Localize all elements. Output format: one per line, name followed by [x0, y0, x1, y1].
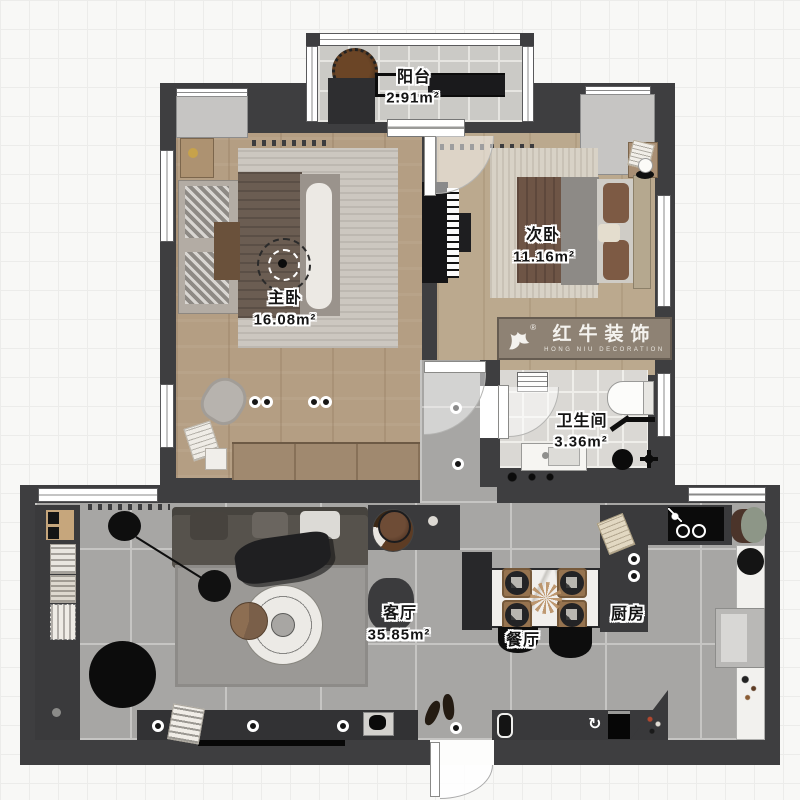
shower-drain	[612, 449, 633, 470]
balcony-sliding-door-opening	[387, 119, 465, 137]
master-area-label: 16.08m²	[254, 312, 317, 329]
master-wardrobe	[232, 442, 420, 480]
living-label: 客厅	[383, 599, 417, 623]
coffee-table-tray	[271, 613, 295, 637]
sofa-pillow-mid	[252, 512, 288, 538]
piano-keys	[447, 188, 459, 278]
bathroom-door-leaf	[498, 385, 509, 439]
master-window-upper	[160, 150, 174, 242]
washing-machine	[328, 78, 375, 124]
balcony-window-left	[306, 46, 318, 122]
master-side-table	[205, 448, 227, 470]
stove-utensil	[668, 508, 682, 522]
console-knob-3	[337, 720, 349, 732]
dining-chair-1	[502, 568, 532, 598]
second-bed-pillow-brown-top	[603, 183, 629, 223]
sofa-pillow-dark	[190, 512, 228, 540]
hongniu-logo-banner: ® 红牛装饰 HONG NIU DECORATION	[497, 317, 672, 360]
shelf-decor	[50, 604, 76, 640]
bathroom-window-right	[657, 373, 671, 437]
curtain-ticks-master	[252, 140, 332, 146]
shower-fixture	[640, 450, 658, 468]
bay-window-top-left	[176, 96, 248, 138]
bathroom-faucet	[542, 452, 549, 459]
balcony-corner-post-right	[520, 33, 534, 46]
bathroom-door-opening	[480, 386, 500, 438]
kitchen-knob-2	[628, 570, 640, 582]
master-door-leaf	[424, 361, 486, 373]
shelf-books-1	[50, 544, 76, 574]
dining-chair-back-2	[549, 627, 592, 658]
dining-chair-pad	[511, 577, 522, 588]
wardrobe-knob-2	[261, 396, 273, 408]
wardrobe-knob-4	[320, 396, 332, 408]
living-window-top-left	[38, 488, 158, 502]
hongniu-bull-icon	[504, 326, 530, 352]
counter-bottle	[497, 713, 513, 738]
wardrobe-knob-3	[308, 396, 320, 408]
refrigerator-door	[721, 614, 747, 662]
kitchen-plant-leaves	[741, 507, 767, 543]
master-label: 主卧	[268, 284, 302, 308]
balcony-window-top	[306, 33, 534, 46]
shelf-vase	[52, 708, 61, 717]
console-speaker-driver	[369, 715, 386, 730]
hongniu-subtitle-text: HONG NIU DECORATION	[544, 347, 665, 353]
kitchen-sink-basin	[737, 548, 764, 575]
kitchen-label: 厨房	[611, 600, 645, 624]
second-bed-duvet-gray	[561, 177, 599, 285]
coffee-table-wood	[230, 602, 268, 640]
shelf-frame-3	[48, 527, 59, 539]
console-knob-1	[152, 720, 164, 732]
entry-doorstop	[450, 722, 462, 734]
hongniu-brand-text: 红牛装饰	[552, 325, 656, 344]
shelf-frame-2	[48, 512, 59, 524]
piano-body	[422, 182, 448, 283]
second-bed-pillow-white	[598, 224, 620, 242]
tv-screen	[198, 740, 345, 746]
balcony-corner-post-left	[306, 33, 320, 46]
second-bed-headboard	[633, 175, 651, 289]
balcony-area-label: 2.91m²	[386, 90, 440, 107]
console-knob-2	[247, 720, 259, 732]
dining-centerpiece-flowers	[530, 582, 562, 614]
wardrobe-knob-1	[249, 396, 261, 408]
dining-side-vase	[378, 510, 411, 543]
second-bedroom-window-right	[657, 195, 671, 307]
master-bed-sheet-white	[306, 183, 332, 309]
second-nightstand-lamp	[638, 158, 653, 173]
living-area-label: 35.85m²	[368, 627, 431, 644]
bathroom-label: 卫生间	[556, 407, 607, 431]
dining-label: 餐厅	[506, 626, 540, 650]
second-label: 次卧	[526, 221, 560, 245]
dishwasher-icon: ↻	[588, 714, 601, 734]
stove-burner-2	[692, 524, 706, 538]
dining-chair-pad	[566, 609, 577, 620]
shelf-books-2	[50, 575, 76, 603]
kitchen-window-top	[688, 487, 766, 502]
master-bed-runner	[214, 222, 240, 280]
kitchen-floor-specks	[738, 672, 762, 702]
master-window-lower	[160, 384, 174, 448]
dining-bench	[462, 552, 492, 630]
balcony-label: 阳台	[397, 63, 431, 87]
floor-plan-canvas: ® 红牛装饰 HONG NIU DECORATION	[0, 0, 800, 800]
counter-appliance	[608, 711, 630, 739]
arc-lamp-shade	[198, 570, 231, 602]
balcony-window-right	[522, 46, 534, 122]
beanbag-chair	[89, 641, 156, 708]
kitchen-knob-1	[628, 553, 640, 565]
dining-chair-4	[557, 600, 587, 630]
curtain-ticks-living	[88, 504, 170, 510]
master-dresser-lamp	[188, 148, 198, 158]
counter-spice-specks	[644, 712, 664, 736]
entrance-door-leaf	[430, 742, 440, 797]
bathroom-area-label: 3.36m²	[554, 434, 608, 451]
dining-side-dish	[428, 516, 438, 526]
dining-chair-pad	[511, 609, 522, 620]
toilet-tank	[643, 381, 654, 415]
hongniu-registered-mark: ®	[530, 323, 536, 332]
ceiling-fan-center	[278, 259, 287, 268]
second-area-label: 11.16m²	[513, 249, 575, 266]
floor-magazine	[167, 703, 205, 744]
master-dresser	[180, 138, 214, 178]
second-bed-pillow-brown-bottom	[603, 240, 629, 280]
entrance-door-swing	[440, 765, 493, 799]
stove-burner-1	[676, 524, 690, 538]
piano-bench	[457, 213, 471, 252]
dining-chair-pad	[566, 577, 577, 588]
second-bedroom-door-leaf	[424, 136, 436, 196]
bathroom-lower-shelf-items	[505, 471, 565, 483]
